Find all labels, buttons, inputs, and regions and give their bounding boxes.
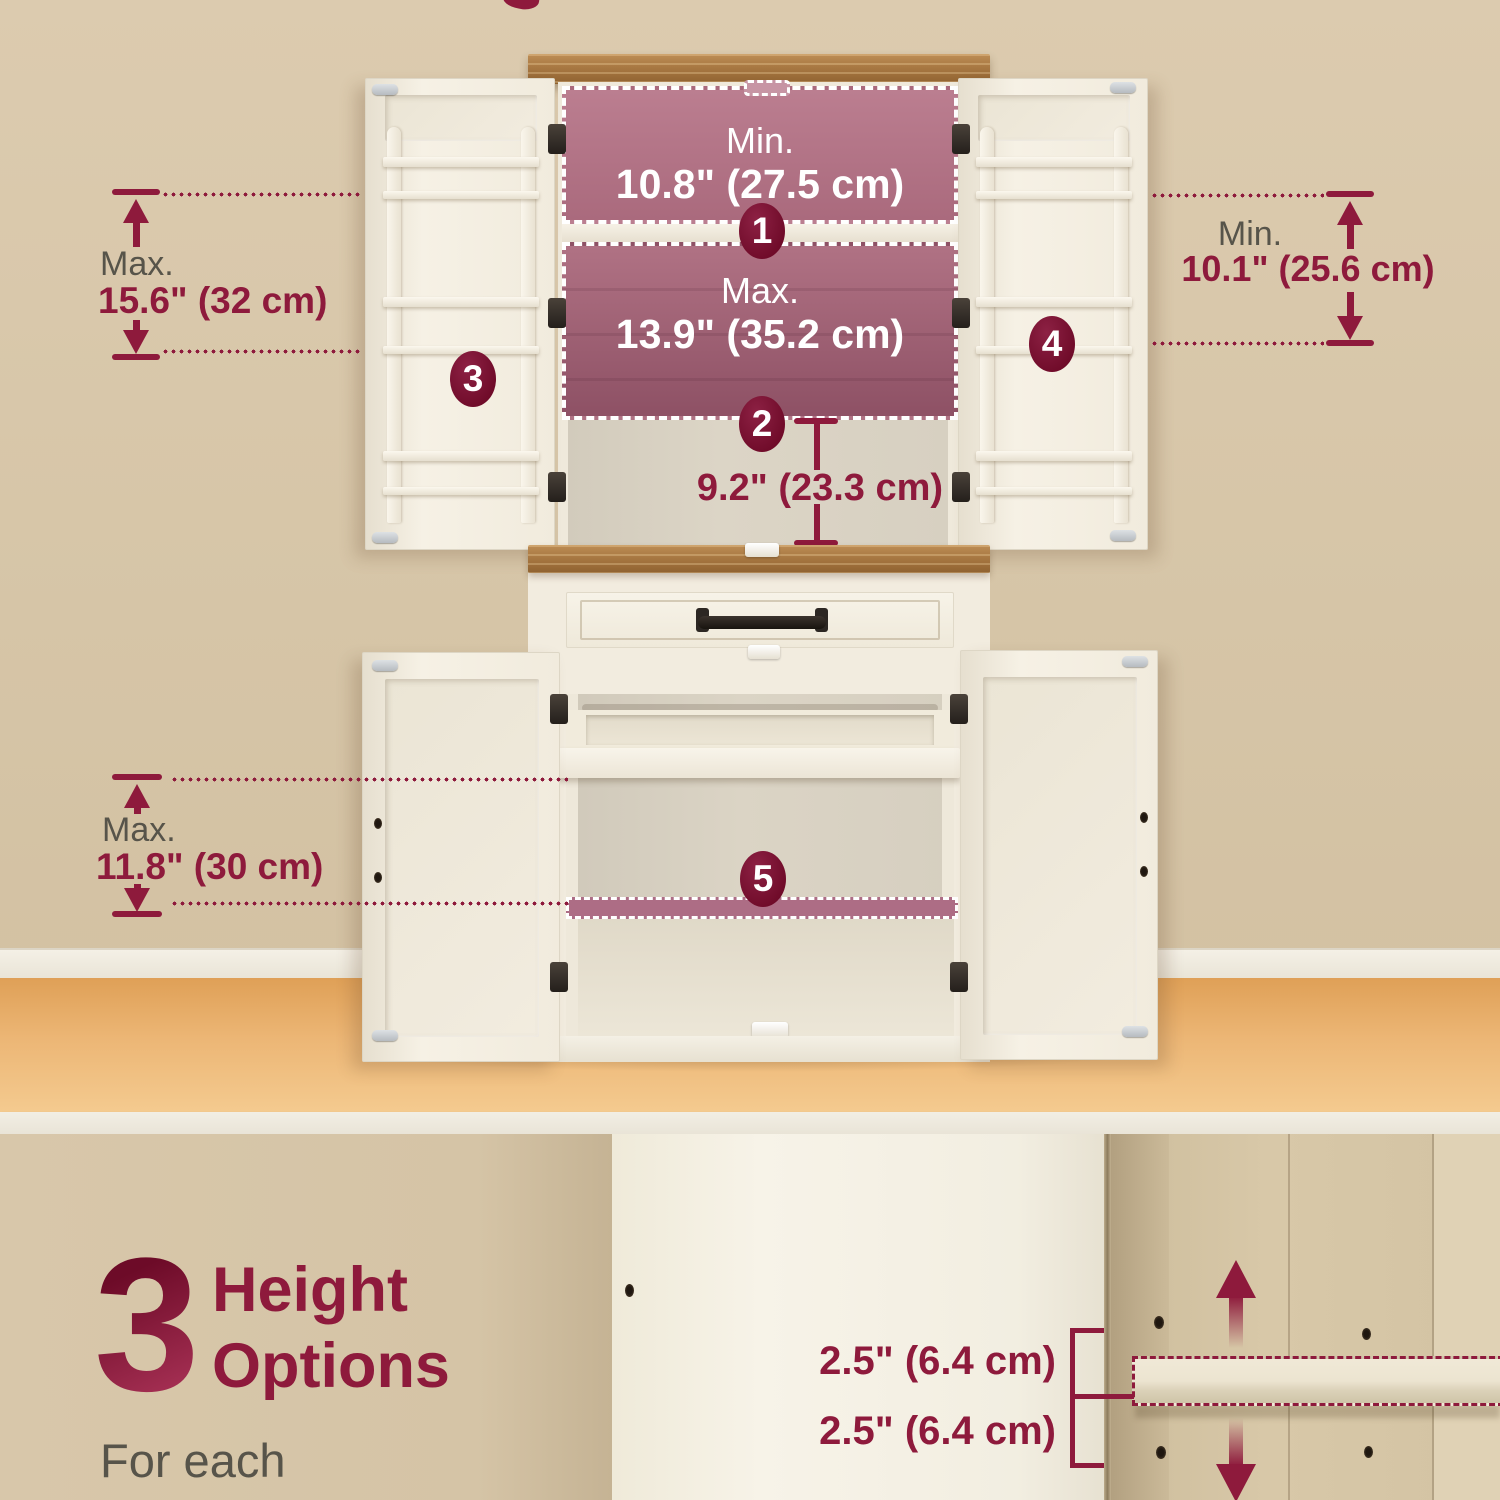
shelf-pin-hole [374, 872, 382, 883]
door-shelf-bar [383, 487, 539, 495]
upper-right-door [958, 78, 1148, 550]
lower-left-door [362, 652, 560, 1062]
measure-tick [112, 189, 160, 195]
door-rack-rail-right [1114, 127, 1128, 523]
slot1-value: 10.8" (27.5 cm) [562, 162, 958, 206]
section-divider [0, 1112, 1500, 1134]
arrow-stem-fading [1229, 1418, 1243, 1466]
bracket-bottom [1070, 1463, 1104, 1468]
door-top-panel [385, 95, 537, 141]
leader-dotted-line [172, 777, 568, 782]
measure-tick [112, 774, 162, 780]
measure-stem [1347, 223, 1354, 249]
hinge [548, 472, 566, 502]
gap-value: 9.2" (23.3 cm) [690, 468, 950, 509]
leader-dotted-line [163, 192, 363, 197]
detail-subtitle-line1: For each [100, 1436, 285, 1487]
measure-stem [814, 504, 820, 542]
cable-notch [744, 80, 790, 96]
door-shelf-bar [976, 451, 1132, 461]
pullout-tray-body [566, 710, 954, 750]
slot1-label: Min. [562, 122, 958, 161]
corner-bracket [1122, 656, 1148, 667]
pullout-tray-front-rail [556, 748, 960, 778]
door-shelf-bar [976, 297, 1132, 307]
detail-shelf-shadow [1135, 1404, 1500, 1418]
arrow-up-icon [124, 784, 150, 808]
detail-measure-bottom: 2.5" (6.4 cm) [800, 1410, 1056, 1453]
marker-3: 3 [450, 351, 496, 407]
door-shelf-bar [383, 346, 539, 354]
detail-light-panel [1434, 1134, 1500, 1500]
base-measure-value: 11.8" (30 cm) [96, 847, 323, 887]
marker-1: 1 [739, 203, 785, 259]
marker-2: 2 [739, 396, 785, 452]
door-shelf-bar [383, 157, 539, 167]
arrow-down-icon [1337, 316, 1363, 340]
corner-bracket [372, 660, 398, 671]
measure-tick [1326, 191, 1374, 197]
door-top-panel [978, 95, 1130, 141]
detail-subtitle-line2: adjustable shelf [100, 1494, 427, 1500]
shelf-pin-hole [625, 1284, 634, 1297]
marker-5: 5 [740, 851, 786, 907]
upper-left-door [365, 78, 555, 550]
hinge [950, 962, 968, 992]
hinge [950, 694, 968, 724]
corner-bracket [1110, 82, 1136, 93]
detail-shelf [1132, 1356, 1500, 1406]
corner-bracket [372, 532, 398, 543]
right-measure-value: 10.1" (25.6 cm) [1178, 250, 1438, 289]
corner-bracket [372, 84, 398, 95]
arrow-down-icon [1216, 1464, 1256, 1500]
leader-dotted-line [1152, 193, 1324, 198]
measure-tick [112, 911, 162, 917]
detail-section: 2.5" (6.4 cm) 2.5" (6.4 cm) 3 Height Opt… [0, 1134, 1500, 1500]
measure-stem [814, 424, 820, 470]
corner-bracket [372, 1030, 398, 1041]
anti-tip-clip [745, 543, 779, 557]
detail-panel-seam [1104, 1134, 1111, 1500]
handle-bar [698, 616, 826, 629]
leader-dotted-line [1152, 341, 1324, 346]
door-shelf-bar [976, 191, 1132, 199]
door-shelf-bar [976, 157, 1132, 167]
arrow-up-icon [123, 199, 149, 223]
bracket-top [1070, 1328, 1104, 1333]
arrow-up-icon [1216, 1260, 1256, 1298]
base-measure-label: Max. [102, 812, 176, 849]
arrow-up-icon [1337, 201, 1363, 225]
arrow-down-icon [123, 330, 149, 354]
shelf-pin-hole [1140, 866, 1148, 877]
base-bottom-rail [528, 1036, 990, 1062]
door-shelf-bar [383, 297, 539, 307]
door-shelf-bar [383, 191, 539, 199]
corner-bracket [1110, 530, 1136, 541]
corner-bracket [1122, 1026, 1148, 1037]
detail-title-line1: Height [212, 1256, 408, 1324]
door-shelf-bar [383, 451, 539, 461]
bracket-middle [1070, 1394, 1134, 1399]
measure-stem [133, 221, 140, 247]
detail-measure-top: 2.5" (6.4 cm) [800, 1340, 1056, 1383]
detail-title-line2: Options [212, 1332, 450, 1400]
door-panel [385, 679, 539, 1037]
left-measure-value: 15.6" (32 cm) [98, 281, 327, 321]
shelf-pin-hole [1140, 812, 1148, 823]
door-panel [983, 677, 1137, 1035]
lower-right-door [960, 650, 1158, 1060]
slot2-label: Max. [562, 272, 958, 311]
drawer-handle [696, 608, 828, 636]
hinge [952, 472, 970, 502]
arrow-down-icon [124, 888, 150, 912]
shelf-pin-hole [1154, 1316, 1164, 1329]
shelf-pin-hole [1362, 1328, 1371, 1340]
door-rack-rail-left [387, 127, 401, 523]
door-rack-rail-right [521, 127, 535, 523]
slot2-value: 13.9" (35.2 cm) [562, 312, 958, 356]
shelf-pin-hole [1364, 1446, 1373, 1458]
arrow-stem-fading [1229, 1296, 1243, 1348]
measure-tick [112, 354, 160, 360]
plank-line [1288, 1134, 1290, 1500]
big-number: 3 [94, 1230, 200, 1420]
leader-dotted-line [172, 901, 568, 906]
anti-tip-clip [748, 645, 780, 659]
door-shelf-bar [976, 487, 1132, 495]
measure-tick [1326, 340, 1374, 346]
cavity-floor [578, 919, 954, 1036]
door-rack-rail-left [980, 127, 994, 523]
hinge [550, 694, 568, 724]
shelf-pin-hole [1156, 1446, 1166, 1459]
marker-4: 4 [1029, 316, 1075, 372]
shelf-pin-hole [374, 818, 382, 829]
left-measure-label: Max. [100, 246, 174, 283]
leader-dotted-line [163, 349, 363, 354]
product-infographic: Min. 10.8" (27.5 cm) Max. 13.9" (35.2 cm… [0, 0, 1500, 1500]
pullout-tray-recess [586, 715, 934, 745]
hinge [550, 962, 568, 992]
